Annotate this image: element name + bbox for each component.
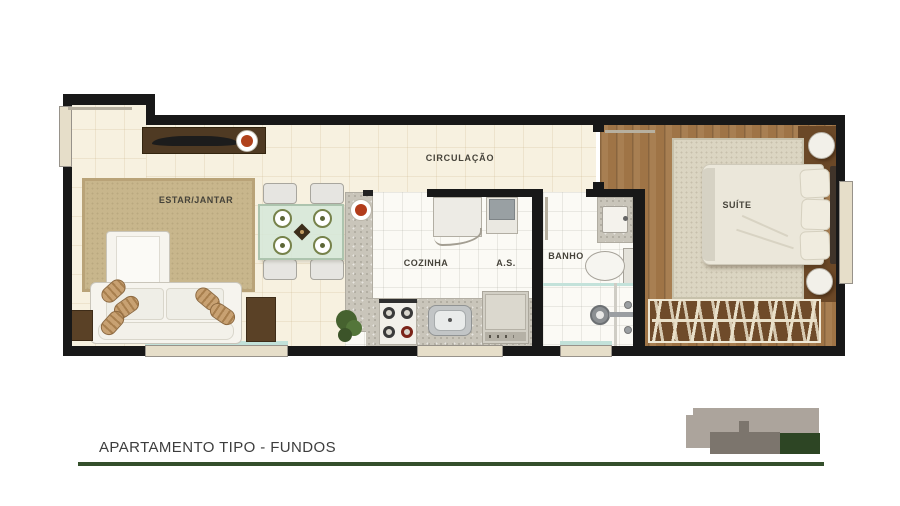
floorplan-canvas: ESTAR/JANTAR CIRCULAÇÃO COZINHA A.S. BAN… [0,0,900,506]
bed-pillow [799,168,830,199]
laundry-tank-controls [485,332,526,341]
dining-chair [263,183,297,204]
shower-arm [609,312,633,317]
nightstand-top [808,132,835,159]
place-setting [273,209,292,228]
accent-line [78,462,824,466]
bath-faucet [623,216,628,221]
counter-remote [363,190,373,196]
burner [401,326,413,338]
bed-pillow [800,230,831,260]
shower-knob [624,326,632,334]
window-right [839,181,853,284]
footer-logo [686,408,820,455]
room-label-suite: SUÍTE [705,200,769,210]
side-table-right [246,297,276,342]
window-left [59,106,72,167]
laundry-tank-top [485,294,526,330]
bed-foot-bench [702,168,715,261]
room-label-living: ESTAR/JANTAR [136,195,256,205]
kitchen-faucet [448,318,452,322]
wall-top-bump [63,94,155,105]
room-label-bathroom: BANHO [544,251,588,261]
logo-dark-block [710,432,780,454]
shower-knob [624,301,632,309]
place-setting [313,236,332,255]
burner [401,307,413,319]
bathroom-door-leaf [545,197,548,240]
logo-green-block [780,433,820,454]
logo-chimney [739,421,749,432]
wall-kitchen-bathroom [532,189,543,347]
room-label-kitchen: COZINHA [388,258,464,268]
window-bottom-kitchen [417,345,503,357]
stove [379,299,417,345]
decor-plate-center [241,135,253,147]
wall-top-main [146,115,845,125]
place-setting [273,236,292,255]
window-bottom-bathroom [560,345,612,357]
burner [383,326,395,338]
logo-notch [686,408,693,415]
wardrobe [648,299,821,343]
table-centerpiece-dot [300,230,304,234]
bed-pillow [800,198,831,230]
plan-title: APARTAMENTO TIPO - FUNDOS [99,439,336,456]
dining-chair [310,259,344,280]
counter-plate-center [355,204,367,216]
shower-glass-horizontal [543,283,633,286]
dining-chair [263,259,297,280]
stove-control-strip [379,299,417,303]
shower-drain-center [596,311,604,319]
wall-kitchen-top [427,189,543,197]
room-label-circulation: CIRCULAÇÃO [415,153,505,163]
toilet-bowl [585,251,625,281]
washing-machine-lid [489,199,515,220]
nightstand-bottom [806,268,833,295]
plant-leaf [338,328,352,342]
room-label-service: A.S. [486,258,526,268]
dining-chair [310,183,344,204]
entrance-door-leaf [68,107,132,110]
window-bottom-living [145,345,288,357]
wardrobe-rail [652,319,817,322]
burner [383,307,395,319]
place-setting [313,209,332,228]
suite-door-leaf [605,130,655,133]
wall-circulation-suite-top [593,115,604,132]
tv-screen [152,136,238,146]
wall-bathroom-suite [633,189,645,347]
